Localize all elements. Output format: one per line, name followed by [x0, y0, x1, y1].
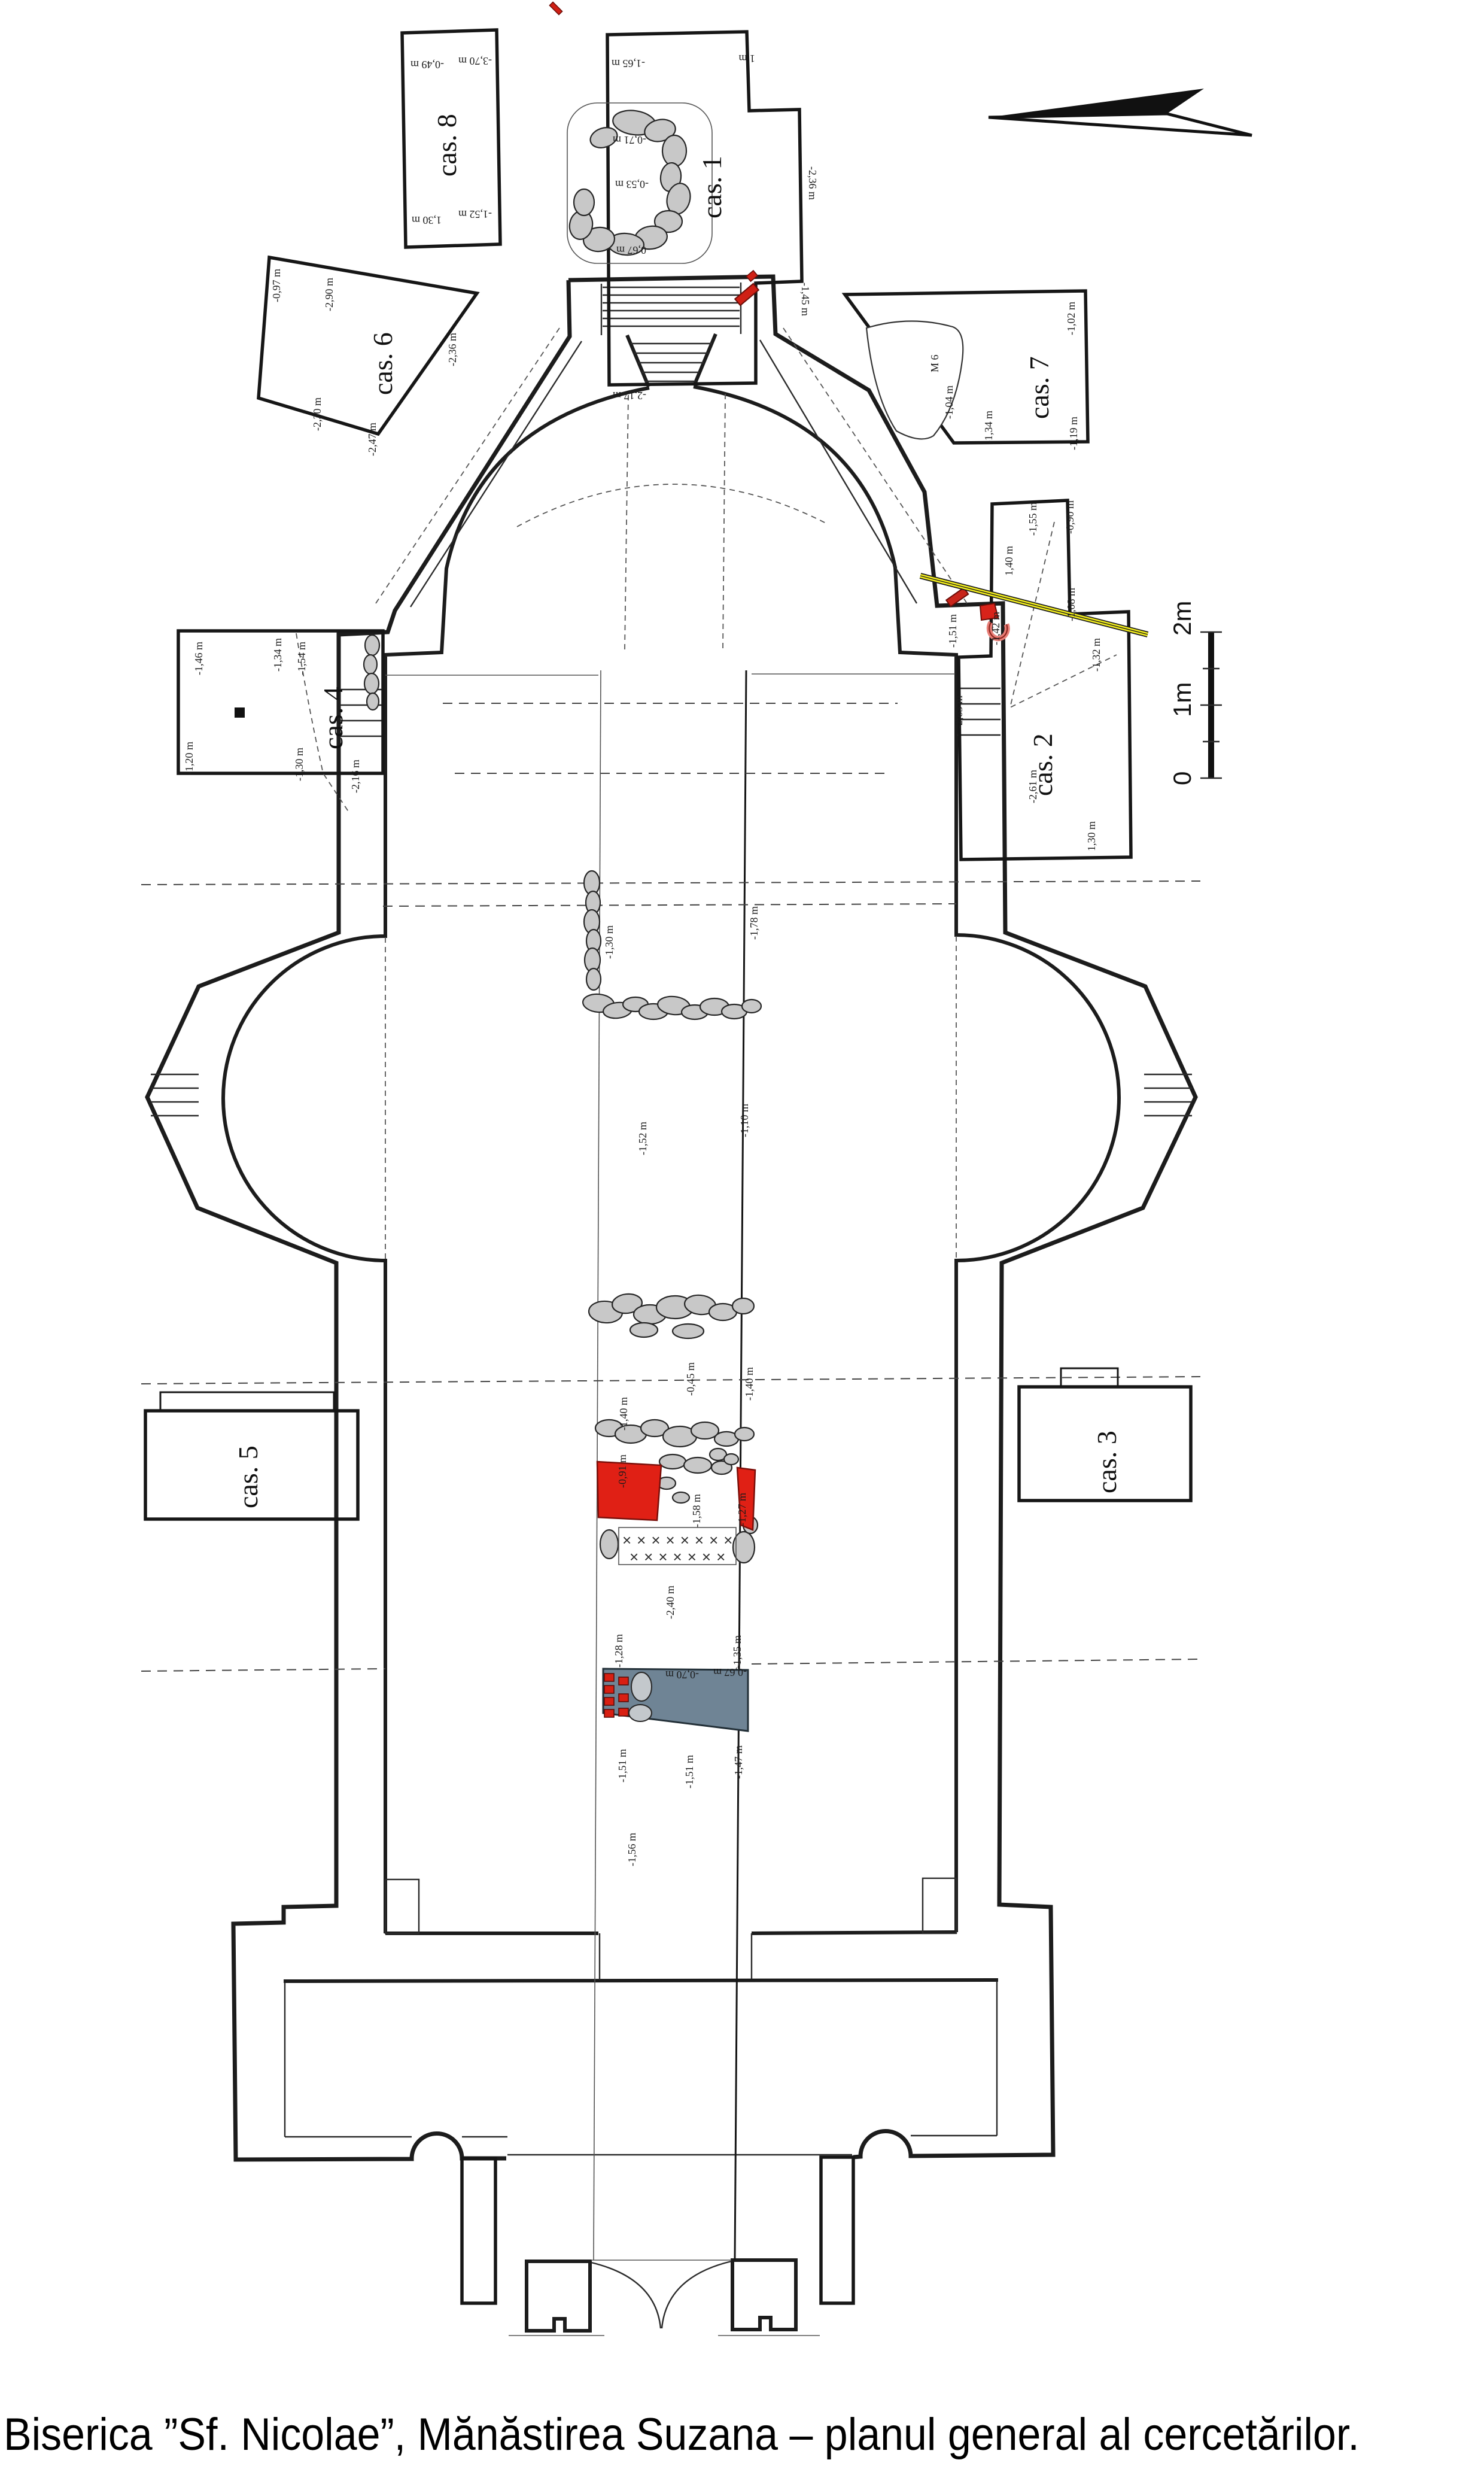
measurement-label: -1,55 m [1027, 502, 1039, 536]
trench-label: cas. 7 [1024, 356, 1054, 419]
cas4-black-square [235, 707, 245, 718]
measurement-label: -2,36 m [807, 166, 819, 200]
entrance-pillar-left [527, 2261, 590, 2331]
red-chip-top [549, 2, 562, 14]
plan-shape [603, 287, 740, 326]
plan-shape [673, 1492, 689, 1503]
measurement-label: -1,51 m [616, 1749, 628, 1782]
stone-wall-middle [588, 1292, 754, 1338]
measurement-label: -1,08 m [1065, 588, 1077, 621]
measurement-label: -1,45 m [799, 283, 811, 316]
plan-shape [631, 1672, 652, 1701]
measurement-label: -1,52 m [637, 1122, 649, 1155]
plan-shape [989, 89, 1204, 117]
scale-bar-label: 2m [1168, 601, 1196, 636]
measurement-label: -0,53 m [615, 178, 649, 190]
measurement-label: -1,47 m [732, 1745, 744, 1779]
north-arrow-icon [989, 89, 1252, 135]
plan-shape [600, 1530, 618, 1559]
axial-trench-line-right [735, 670, 746, 2260]
measurement-label: -0,90 m [1064, 500, 1076, 534]
measurement-label: -1,42 m [990, 612, 1002, 645]
measurement-label: -1,34 m [272, 638, 284, 672]
crack-lines [141, 703, 1200, 1671]
measurement-label: -2,30 m [311, 397, 323, 431]
diagonal-wall-faces [410, 340, 917, 607]
porch-wall-right [821, 2157, 853, 2303]
plan-shape [732, 1298, 754, 1314]
measurement-label: -0,91 m [616, 1454, 628, 1488]
measurement-label: -2,63 m [953, 696, 965, 729]
scale-bar-label: 1m [1168, 682, 1196, 717]
church-outer-wall [147, 277, 1196, 2160]
scale-bar: 01m2m [1168, 601, 1222, 785]
measurement-label: -1,52 m [458, 208, 492, 220]
plan-shape [364, 673, 379, 694]
measurement-label: -1,19 m [1068, 417, 1079, 450]
plan-shape [365, 635, 379, 655]
bema-step-lines [385, 674, 955, 675]
plan-shape [659, 1454, 686, 1469]
measurement-label: -1,10 m [738, 1104, 750, 1137]
measurement-label: -1,56 m [626, 1833, 638, 1866]
narthex-inner-faces [285, 1981, 997, 2155]
plan-shape [604, 1674, 614, 1681]
plan-shape [604, 1697, 614, 1705]
measurement-label: 1,30 m [1085, 821, 1097, 851]
plan-shape [989, 114, 1252, 135]
site-plan: ×××××××× ××××××× [0, 0, 1484, 2472]
measurement-label: -1,78 m [748, 906, 760, 940]
measurement-label: -2,40 m [664, 1586, 676, 1619]
plan-shape [364, 655, 377, 674]
altar-steps-hatch [601, 283, 741, 381]
page: ×××××××× ××××××× [0, 0, 1484, 2472]
measurement-label: -2,16 m [349, 760, 361, 793]
trench-label: cas. 1 [697, 156, 727, 218]
plan-shape [1144, 1074, 1192, 1116]
measurement-label: -1,51 m [947, 614, 959, 648]
plan-shape [684, 1457, 711, 1473]
measurement-label: -2,36 m [446, 333, 458, 366]
measurement-label: -3,70 m [458, 55, 492, 67]
measurement-label: -1,35 m [731, 1635, 743, 1669]
measurement-label: -1,30 m [603, 925, 615, 959]
measurement-label: -0,97 m [270, 269, 282, 302]
measurement-label: -1,46 m [193, 642, 205, 675]
naos-west-wall [284, 1878, 998, 1981]
measurement-label: -1,58 m [691, 1494, 703, 1527]
measurement-label: -0,67 m [713, 1666, 747, 1678]
plan-shape [151, 1074, 199, 1116]
features: ×××××××× ××××××× [549, 2, 1148, 1731]
entrance-pillar-right [732, 2260, 796, 2330]
measurement-label: -0,45 m [685, 1362, 697, 1396]
plan-shape [662, 135, 686, 166]
m6-feature [866, 321, 963, 439]
plan-shape [619, 1694, 628, 1702]
measurement-label: -1,32 m [1090, 638, 1102, 672]
measurement-label: -1,65 m [612, 57, 645, 69]
plan-shape [385, 1879, 419, 1933]
plan-shape [619, 1677, 628, 1685]
trench-label: cas. 3 [1091, 1431, 1122, 1493]
measurement-label: -1,54 m [296, 642, 308, 675]
measurement-label: -0,67 m [616, 244, 650, 256]
trench-cas-2 [959, 500, 1131, 860]
scale-bar-label: 0 [1168, 772, 1196, 785]
red-feature-large [597, 1462, 661, 1520]
hatch-row-1: ×××××××× [622, 1531, 738, 1549]
door-swing-arcs [591, 2261, 731, 2328]
measurement-label: M 6 [929, 354, 941, 372]
measurement-label: -1,02 m [1065, 302, 1077, 335]
porch-wall-left [462, 2158, 495, 2303]
hatched-band: ×××××××× ××××××× [619, 1527, 738, 1566]
measurement-label: -0,49 m [410, 59, 444, 71]
plan-shape [630, 1323, 658, 1337]
apse-chords [385, 936, 956, 1259]
plan-shape [367, 693, 379, 710]
plan-shape [742, 1000, 761, 1013]
measurement-label: -2,90 m [323, 278, 335, 311]
measurement-label: -1,40 m [618, 1397, 630, 1431]
measurement-label: -2,47 m [366, 423, 378, 456]
plan-shape [923, 1878, 956, 1933]
measurement-label: -1,27 m [736, 1493, 748, 1526]
measurement-label: 1,30 m [412, 214, 442, 226]
plan-shape [604, 1709, 614, 1717]
measurement-label: -1,30 m [293, 748, 305, 781]
plan-shape [586, 968, 601, 990]
scale-bar-labels: 01m2m [1168, 601, 1196, 785]
trench-label: cas. 5 [233, 1445, 263, 1508]
hatch-row-2: ××××××× [630, 1548, 731, 1566]
plan-shape [735, 1428, 754, 1441]
measurement-label: -2,61 m [1027, 770, 1039, 803]
plan-shape [629, 1705, 652, 1721]
apse-dashed-arc [517, 484, 828, 527]
plan-shape [284, 1932, 998, 1981]
plan-shape [600, 1933, 752, 1980]
measurement-label: -1,34 m [983, 411, 995, 444]
measurement-label: -1,51 m [683, 1755, 695, 1788]
caption: Biserica ”Sf. Nicolae”, Mănăstirea Suzan… [4, 2409, 1366, 2461]
measurement-label: -1,20 m [183, 742, 195, 775]
plan-shape [673, 1324, 704, 1338]
plan-shape [574, 189, 594, 215]
measurement-label: -0,71 m [613, 134, 646, 146]
altar-neck-walls [627, 334, 716, 387]
measurement-label: 1 m [738, 53, 755, 65]
trench-label: cas. 6 [367, 332, 398, 395]
measurement-label: -0,70 m [665, 1669, 699, 1681]
stones-cas4 [364, 635, 379, 710]
plan-shape [601, 283, 741, 335]
measurement-label: -1,40 m [743, 1367, 755, 1401]
trench-label: cas. 8 [431, 114, 462, 177]
plan-shape [619, 1708, 628, 1716]
trench-cas-5-tab [160, 1392, 334, 1411]
trench-label: cas. 4 [318, 687, 348, 749]
measurement-label: -1,28 m [613, 1634, 625, 1668]
measurement-labels: -0,49 m-3,70 m1,30 m-1,52 m-1,65 m1 m-0,… [183, 53, 1102, 1866]
plan-shape [604, 1686, 614, 1693]
red-chip-cas1 [746, 271, 758, 281]
plan-shape [724, 1454, 738, 1465]
measurement-label: 1,40 m [1003, 546, 1015, 576]
measurement-label: -2,17 m [613, 390, 646, 402]
measurement-label: -1,04 m [943, 385, 955, 419]
